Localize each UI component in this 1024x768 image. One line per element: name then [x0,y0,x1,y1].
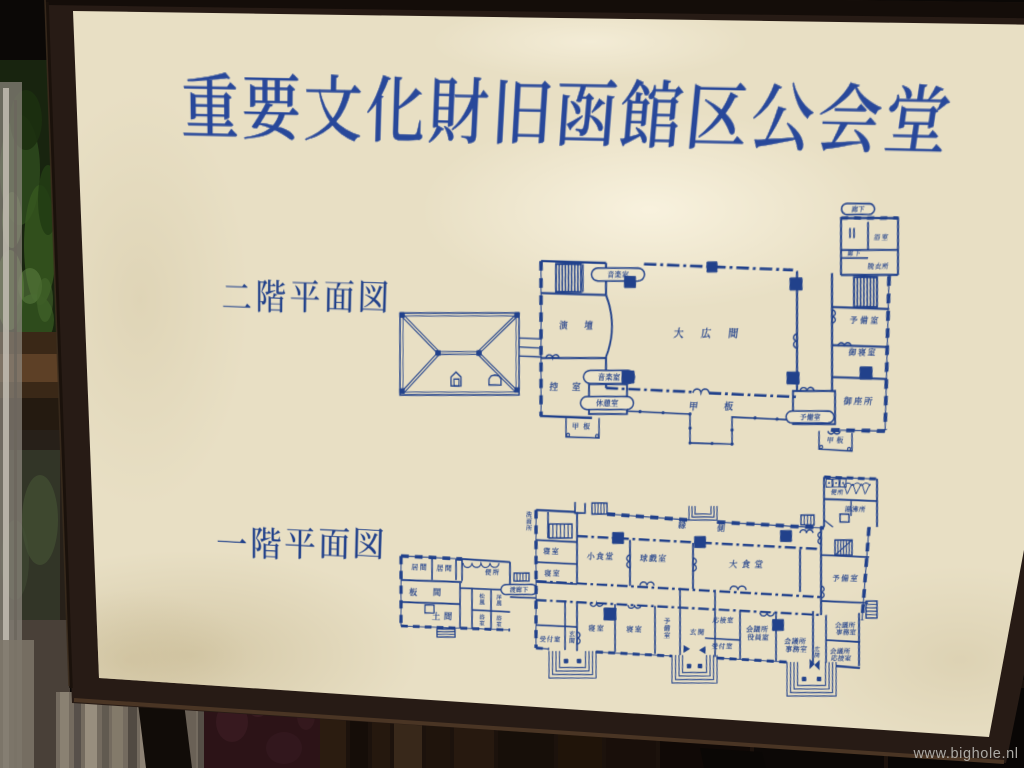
svg-text:www.bighole.nl: www.bighole.nl [912,746,1018,762]
